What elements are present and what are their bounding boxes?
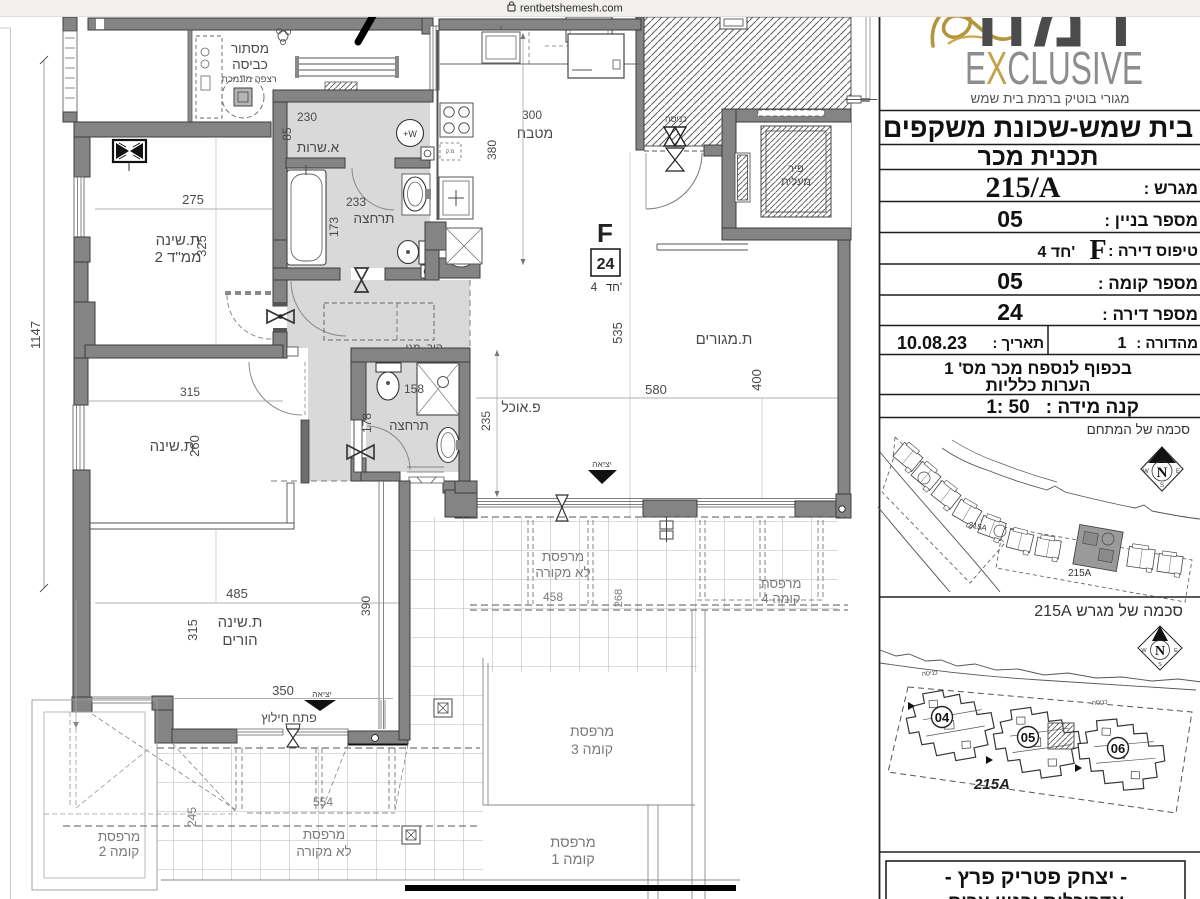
svg-text:400: 400 xyxy=(749,369,764,391)
svg-text:חד': חד' xyxy=(606,282,622,294)
svg-text:215A: 215A xyxy=(1068,568,1092,579)
svg-text:4: 4 xyxy=(591,282,598,294)
svg-text:245: 245 xyxy=(185,807,199,827)
svg-text:S: S xyxy=(1160,483,1164,489)
svg-text:06: 06 xyxy=(1111,741,1125,756)
svg-text:לא מקורה: לא מקורה xyxy=(535,565,590,580)
svg-text:כניסה: כניסה xyxy=(665,114,687,124)
svg-text:מספר דירה :: מספר דירה : xyxy=(1102,305,1198,324)
svg-text:פ.אוכל: פ.אוכל xyxy=(501,399,540,415)
svg-text:04: 04 xyxy=(935,710,950,725)
svg-text:458: 458 xyxy=(543,590,563,604)
svg-text:E: E xyxy=(1174,648,1178,654)
svg-text:רצפה מונמכת: רצפה מונמכת xyxy=(221,74,276,85)
svg-text:1: 1 xyxy=(1118,335,1127,352)
svg-text:סכמה של המתחם: סכמה של המתחם xyxy=(1087,422,1190,437)
svg-text:תרחצה: תרחצה xyxy=(389,418,428,433)
svg-text:מעלית: מעלית xyxy=(781,175,811,188)
svg-text:מרפסת: מרפסת xyxy=(761,576,802,591)
svg-text:ת.מגורים: ת.מגורים xyxy=(696,331,753,348)
svg-text:4: 4 xyxy=(1038,244,1047,261)
svg-text:05: 05 xyxy=(997,206,1023,232)
svg-text:קומה 2: קומה 2 xyxy=(99,844,140,859)
svg-text:מספר בניין :: מספר בניין : xyxy=(1104,211,1198,230)
svg-text:275: 275 xyxy=(182,192,204,207)
svg-text:מרפסת: מרפסת xyxy=(542,549,584,564)
svg-text:554: 554 xyxy=(313,795,333,809)
svg-text:EXCLUSIVE: EXCLUSIVE xyxy=(965,42,1143,94)
svg-text:05: 05 xyxy=(1021,730,1035,745)
svg-text:חד': חד' xyxy=(1051,244,1075,261)
svg-text:פתח חילוץ: פתח חילוץ xyxy=(261,711,317,725)
svg-text:N: N xyxy=(1157,465,1168,481)
svg-text:מגרש :: מגרש : xyxy=(1144,179,1198,198)
svg-text:315: 315 xyxy=(180,385,200,399)
svg-text:מרפסת: מרפסת xyxy=(570,723,614,739)
svg-text:rentbetshemesh.com: rentbetshemesh.com xyxy=(520,3,623,15)
svg-text:מרפסת: מרפסת xyxy=(303,827,345,842)
svg-text:סכמה של מגרש 215A: סכמה של מגרש 215A xyxy=(1034,602,1183,620)
svg-text:א.שרות: א.שרות xyxy=(297,140,340,155)
svg-text:24: 24 xyxy=(997,299,1023,325)
svg-text:מסתור: מסתור xyxy=(231,41,269,56)
svg-text:233: 233 xyxy=(346,195,366,209)
svg-text:הורים: הורים xyxy=(222,632,257,649)
svg-text:טיפוס דירה :: טיפוס דירה : xyxy=(1108,243,1198,260)
svg-text:1147: 1147 xyxy=(28,321,43,349)
svg-text:230: 230 xyxy=(297,110,317,124)
svg-text:325: 325 xyxy=(194,235,209,257)
svg-text:300: 300 xyxy=(522,108,542,122)
svg-text:260: 260 xyxy=(187,435,202,457)
svg-text:- יצחק פטריק פרץ -: - יצחק פטריק פרץ - xyxy=(945,866,1128,889)
svg-text:W: W xyxy=(1141,648,1147,654)
svg-text:10.08.23: 10.08.23 xyxy=(897,333,967,353)
svg-text:380: 380 xyxy=(485,140,499,160)
svg-text:E: E xyxy=(1176,469,1180,475)
svg-text:אדריכלות ובניין ערים: אדריכלות ובניין ערים xyxy=(948,892,1124,899)
svg-text:N: N xyxy=(1155,644,1165,659)
svg-text:כניסה: כניסה xyxy=(1092,699,1109,707)
svg-text:מרפסת: מרפסת xyxy=(98,829,140,844)
svg-text:לא מקורה: לא מקורה xyxy=(296,844,351,859)
svg-text:מהדורה :: מהדורה : xyxy=(1136,335,1198,352)
svg-text:יציאה: יציאה xyxy=(592,459,612,469)
svg-text:215A: 215A xyxy=(973,776,1010,793)
svg-text:תרחצה: תרחצה xyxy=(354,211,395,226)
svg-text:תכנית מכר: תכנית מכר xyxy=(978,143,1099,171)
svg-text:235: 235 xyxy=(479,411,493,431)
svg-text:24: 24 xyxy=(597,256,615,273)
svg-text:W: W xyxy=(1143,469,1149,475)
svg-text:158: 158 xyxy=(404,382,424,396)
svg-text:קומה 3: קומה 3 xyxy=(571,741,613,757)
svg-text:268: 268 xyxy=(613,589,625,607)
svg-text:485: 485 xyxy=(226,586,248,601)
svg-text:1: 50: 1: 50 xyxy=(986,397,1029,418)
svg-text:S: S xyxy=(1158,662,1162,668)
svg-text:05: 05 xyxy=(997,268,1023,294)
svg-text:F: F xyxy=(597,218,613,248)
svg-text:535: 535 xyxy=(610,322,625,344)
svg-text:פיר: פיר xyxy=(788,163,804,175)
svg-text:315: 315 xyxy=(185,619,200,641)
svg-text:קומה 1: קומה 1 xyxy=(551,852,595,868)
svg-text:215/A: 215/A xyxy=(986,171,1061,204)
svg-text:יציאה: יציאה xyxy=(312,689,332,699)
svg-text:מגורי בוטיק ברמת בית שמש: מגורי בוטיק ברמת בית שמש xyxy=(970,91,1129,106)
svg-text:מטבח: מטבח xyxy=(517,125,553,141)
svg-text:קנה מידה :: קנה מידה : xyxy=(1046,397,1139,418)
svg-text:85: 85 xyxy=(280,127,294,141)
svg-text:מספר קומה :: מספר קומה : xyxy=(1098,274,1198,293)
svg-text:בית שמש-שכונת משקפים: בית שמש-שכונת משקפים xyxy=(883,113,1193,143)
svg-text:הערות כלליות: הערות כלליות xyxy=(986,376,1091,395)
svg-text:מרפסת: מרפסת xyxy=(550,835,596,851)
svg-text:580: 580 xyxy=(645,382,667,397)
svg-text:ת.שינה: ת.שינה xyxy=(218,614,263,631)
svg-text:מ.ק: מ.ק xyxy=(446,149,455,155)
svg-text:173: 173 xyxy=(327,217,341,237)
svg-text:390: 390 xyxy=(359,596,373,616)
svg-text:+W: +W xyxy=(403,129,417,139)
svg-text:קומה 4: קומה 4 xyxy=(761,591,800,606)
svg-text:כביסה: כביסה xyxy=(232,57,268,72)
svg-text:תאריך :: תאריך : xyxy=(992,335,1044,352)
svg-text:350: 350 xyxy=(272,683,294,698)
svg-text:F: F xyxy=(1089,235,1106,266)
